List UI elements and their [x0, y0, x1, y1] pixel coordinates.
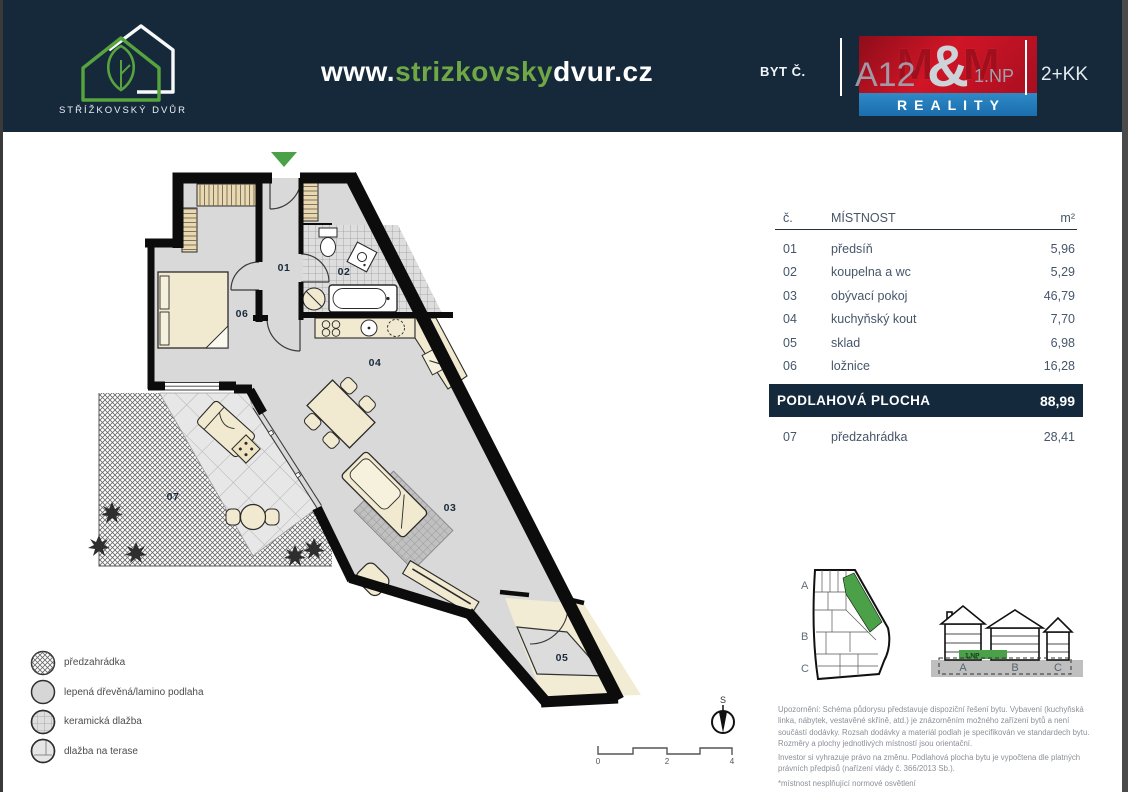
room-label-07: 07 [167, 491, 180, 503]
room-table: č. MÍSTNOST m² 01 předsíň 5,96 02 koupel… [775, 207, 1077, 449]
table-row: 04 kuchyňský kout 7,70 [775, 308, 1077, 332]
svg-text:0: 0 [596, 757, 601, 766]
legend-label: předzahrádka [64, 657, 125, 668]
scale-bar: 0 2 4 [596, 746, 735, 766]
table-row: 07 předzahrádka 28,41 [775, 425, 1077, 449]
site-plan-label-b: B [801, 631, 808, 643]
disclaimer: Upozornění: Schéma půdorysu představuje … [778, 704, 1092, 792]
legend-item: dlažba na terase [30, 737, 204, 767]
legend: předzahrádka lepená dřevěná/lamino podla… [30, 648, 204, 766]
legend-label: dlažba na terase [64, 746, 138, 757]
total-area-label: PODLAHOVÁ PLOCHA [777, 393, 1040, 408]
elevation-diagram: 1.NP A B C [925, 598, 1087, 682]
unit-floor: 1.NP [974, 66, 1014, 87]
elevation-label-b: B [1011, 662, 1018, 674]
site-plan-diagram: A B C [788, 562, 908, 692]
total-area-value: 88,99 [1040, 393, 1075, 409]
bathtub [329, 285, 397, 312]
disclaimer-note: *místnost nesplňující normové osvětlení [778, 778, 1092, 789]
site-plan-label-a: A [801, 580, 809, 592]
room-label-03: 03 [444, 502, 457, 514]
table-row: 02 koupelna a wc 5,29 [775, 261, 1077, 285]
room-label-04: 04 [369, 357, 382, 369]
table-row: 01 předsíň 5,96 [775, 237, 1077, 261]
unit-layout: 2+KK [1041, 64, 1088, 86]
room-label-02: 02 [338, 266, 351, 278]
legend-label: keramická dlažba [64, 716, 142, 727]
svg-text:4: 4 [730, 757, 735, 766]
mm-ampersand: & [927, 38, 969, 96]
col-area: m² [1023, 211, 1077, 225]
header-divider-2 [1025, 40, 1027, 95]
north-arrow-icon: S [712, 695, 734, 733]
legend-label: lepená dřevěná/lamino podlaha [64, 687, 204, 698]
room-label-06: 06 [236, 308, 249, 320]
room-label-05: 05 [556, 652, 569, 664]
room-label-01: 01 [278, 262, 291, 274]
page-border-left [0, 0, 3, 792]
legend-item: keramická dlažba [30, 707, 204, 737]
elevation-label-a: A [959, 662, 967, 674]
elevation-label-c: C [1054, 662, 1062, 674]
total-area-band: PODLAHOVÁ PLOCHA 88,99 [769, 384, 1083, 417]
crosshatch-swatch-icon [30, 650, 56, 676]
col-room: MÍSTNOST [831, 211, 1023, 225]
svg-text:2: 2 [665, 757, 670, 766]
bedroom-window [163, 383, 221, 391]
hall-cabinet [303, 179, 318, 221]
disclaimer-paragraph: Investor si vyhrazuje právo na změnu. Po… [778, 752, 1092, 775]
col-number: č. [775, 211, 831, 225]
unit-number: A12 [855, 56, 916, 95]
page-border-right [1122, 0, 1128, 792]
svg-text:S: S [720, 695, 726, 705]
legend-item: předzahrádka [30, 648, 204, 678]
table-row: 06 ložnice 16,28 [775, 355, 1077, 379]
page: STŘÍŽKOVSKÝ DVŮR www.strizkovskydvur.cz … [0, 0, 1128, 792]
mm-reality-band: REALITY [859, 93, 1037, 116]
plain-floor-swatch-icon [30, 679, 56, 705]
table-row: 05 sklad 6,98 [775, 331, 1077, 355]
large-tile-swatch-icon [30, 738, 56, 764]
table-header-rule [775, 229, 1077, 230]
entrance-marker-icon [271, 152, 297, 167]
site-plan-label-c: C [801, 663, 809, 675]
table-header: č. MÍSTNOST m² [775, 207, 1077, 229]
toilet [319, 228, 337, 257]
table-row: 03 obývací pokoj 46,79 [775, 284, 1077, 308]
bed [158, 272, 228, 348]
legend-item: lepená dřevěná/lamino podlaha [30, 678, 204, 708]
disclaimer-paragraph: Upozornění: Schéma půdorysu představuje … [778, 704, 1092, 749]
washing-machine [303, 288, 325, 310]
fine-grid-swatch-icon [30, 709, 56, 735]
